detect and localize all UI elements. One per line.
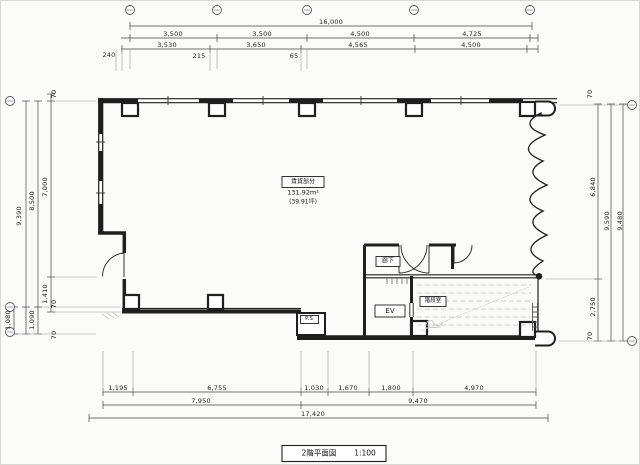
dim-left-70-top: 70 [50,90,58,99]
dim-right-70-bot: 70 [586,332,594,341]
dim-left-8500: 8,500 [28,191,36,211]
columns [122,102,535,337]
dim-bot-r1-2: 6,755 [207,384,227,392]
dim-right-9480: 9,480 [616,211,624,231]
bottom-right-capsule-wall-end [535,332,555,346]
dim-top-r1-1: 3,500 [163,30,183,38]
dim-right-6840: 6,840 [589,177,597,197]
stairwell-label: 階段室 [425,298,442,304]
dim-bot-r1-6: 4,970 [464,384,484,392]
dim-left-1090: 1,090 [28,310,36,330]
room-name-label: 賃貸部分 [291,179,315,186]
room-area-tsubo: (39.91坪) [289,199,317,206]
room-area-m2: 131.92m² [287,190,319,197]
dim-top-r1-2: 3,500 [252,30,272,38]
dim-bot-total: 17,420 [301,410,325,418]
dim-bot-r1-3: 1,030 [304,384,324,392]
dim-left-7000: 7,000 [41,177,49,197]
drawing-title: 2階平面図 [302,449,337,458]
pipe-space-label: P.S [305,316,313,322]
dim-right-70-top: 70 [586,90,594,99]
dim-bot-r2-2: 9,470 [408,397,428,405]
stair-area-hatch [417,285,531,331]
dim-left-1080: 1,080 [4,310,12,330]
dim-top-small-65: 65 [290,52,299,60]
dim-top-small-215: 215 [192,52,205,60]
dim-left-70-mid: 70 [50,300,58,309]
dim-top-r2-1: 3,530 [157,41,177,49]
dim-left-1410: 1,410 [41,284,49,304]
corridor-door-arcs [399,245,472,273]
dim-bot-r1-5: 1,800 [381,384,401,392]
dim-top-r1-3: 4,500 [350,30,370,38]
dim-bot-r1-1: 1,195 [108,384,128,392]
dim-top-r1-4: 4,725 [462,30,482,38]
top-right-capsule-wall-end [535,102,555,116]
dim-top-r2-4: 4,500 [461,41,481,49]
corridor-label: 廊下 [382,258,394,265]
dim-left-70-bot: 70 [50,331,58,340]
floor-plan-sheet: 16,000 3,500 3,500 4,500 4,725 3,530 3,6… [0,0,640,465]
left-dimension-lines [10,94,121,334]
elevator-label: EV [385,307,394,315]
dim-top-total: 16,000 [319,18,343,26]
drawing-scale: 1:100 [354,449,376,458]
dim-top-small-240: 240 [102,51,115,59]
exterior-walls [96,96,557,346]
dim-right-2750: 2,750 [589,297,597,317]
wavy-right-edge [528,113,547,276]
right-dimension-lines [546,104,627,341]
ladder [532,303,538,331]
dim-bot-r1-4: 1,670 [338,384,358,392]
dim-top-r2-3: 4,565 [348,41,368,49]
entry-door-arc [102,253,124,277]
floor-plan-linework [1,1,640,465]
dim-top-r2-2: 3,650 [246,41,266,49]
dim-bot-r2-1: 7,950 [191,397,211,405]
dim-right-9590: 9,590 [603,211,611,231]
dim-left-9390: 9,390 [15,206,23,226]
